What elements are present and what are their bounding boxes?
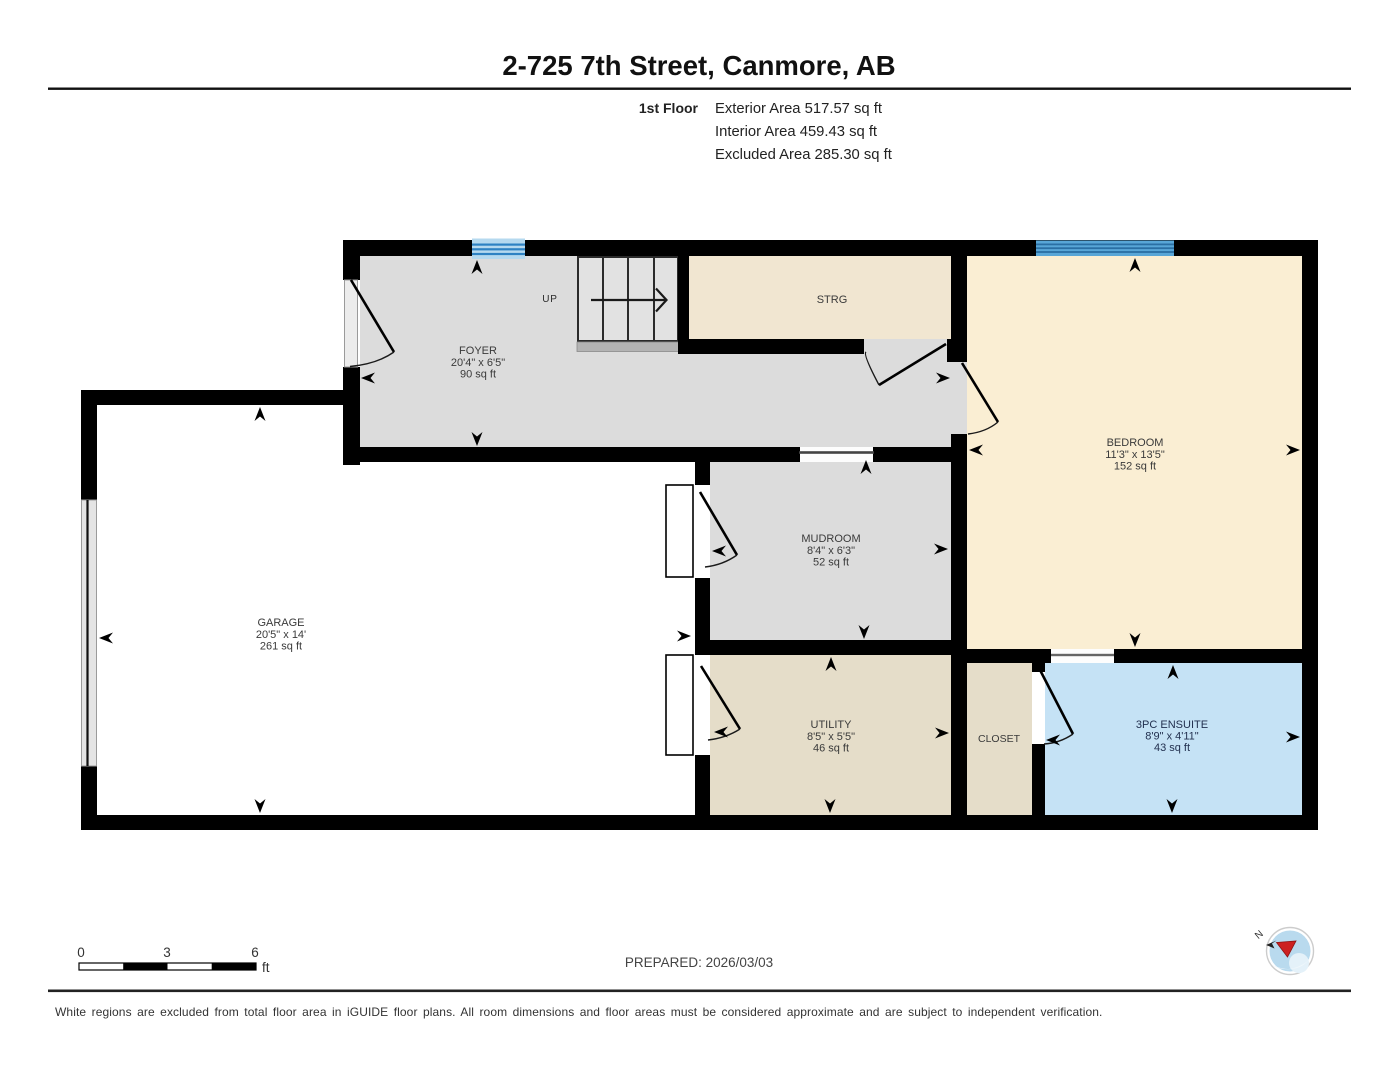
svg-text:46 sq ft: 46 sq ft <box>813 743 849 755</box>
svg-text:GARAGE: GARAGE <box>257 617 304 629</box>
svg-text:N: N <box>1253 929 1266 942</box>
svg-text:0: 0 <box>77 945 85 960</box>
svg-text:White regions are excluded fro: White regions are excluded from total fl… <box>55 1005 1102 1019</box>
svg-text:152 sq ft: 152 sq ft <box>1114 461 1156 473</box>
svg-text:3: 3 <box>163 945 171 960</box>
svg-text:52 sq ft: 52 sq ft <box>813 557 849 569</box>
svg-text:PREPARED: 2026/03/03: PREPARED: 2026/03/03 <box>625 955 773 970</box>
svg-text:Exterior Area 517.57 sq ft: Exterior Area 517.57 sq ft <box>715 101 882 117</box>
svg-text:MUDROOM: MUDROOM <box>801 533 860 545</box>
svg-text:FOYER: FOYER <box>459 345 497 357</box>
svg-text:CLOSET: CLOSET <box>978 733 1021 745</box>
svg-text:Interior Area 459.43 sq ft: Interior Area 459.43 sq ft <box>715 124 877 140</box>
svg-text:8'4" x 6'3": 8'4" x 6'3" <box>807 545 855 557</box>
svg-text:20'4" x 6'5": 20'4" x 6'5" <box>451 357 505 369</box>
svg-text:11'3" x 13'5": 11'3" x 13'5" <box>1105 449 1165 461</box>
svg-text:261 sq ft: 261 sq ft <box>260 641 302 653</box>
svg-text:43 sq ft: 43 sq ft <box>1154 742 1190 754</box>
svg-text:8'5" x 5'5": 8'5" x 5'5" <box>807 731 855 743</box>
svg-text:ft: ft <box>262 960 270 975</box>
svg-text:STRG: STRG <box>817 294 848 306</box>
svg-text:Excluded Area 285.30 sq ft: Excluded Area 285.30 sq ft <box>715 147 892 163</box>
svg-text:2-725 7th Street, Canmore, AB: 2-725 7th Street, Canmore, AB <box>502 50 895 81</box>
svg-text:20'5" x 14': 20'5" x 14' <box>256 629 306 641</box>
svg-text:3PC ENSUITE: 3PC ENSUITE <box>1136 719 1208 731</box>
svg-text:1st Floor: 1st Floor <box>639 100 699 116</box>
svg-text:6: 6 <box>251 945 259 960</box>
svg-text:UP: UP <box>542 294 558 305</box>
svg-text:UTILITY: UTILITY <box>811 719 853 731</box>
svg-text:BEDROOM: BEDROOM <box>1107 437 1164 449</box>
svg-text:90 sq ft: 90 sq ft <box>460 369 496 381</box>
svg-text:8'9" x 4'11": 8'9" x 4'11" <box>1145 731 1198 743</box>
